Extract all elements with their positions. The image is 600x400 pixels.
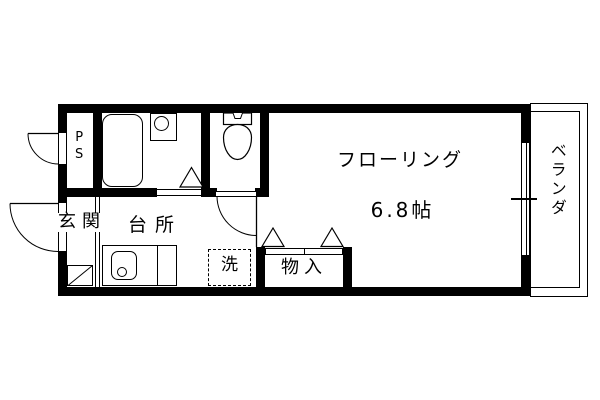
ps-label: PS [72, 130, 86, 164]
kitchen-label: 台所 [128, 216, 182, 236]
shoe-cabinet-diagonal [68, 266, 93, 286]
flooring-size-label: 6.8帖 [300, 200, 505, 221]
floor-plan: PS 玄関 台所 洗 物入 フローリング 6.8帖 ベランダ [0, 0, 600, 400]
bath-door-triangle [180, 168, 203, 188]
washer-label: 洗 [208, 257, 251, 275]
toilet [224, 113, 252, 160]
toilet-door-arc [217, 196, 257, 236]
toilet-bowl [224, 125, 252, 160]
ps-door-arc [28, 134, 59, 165]
closet-label: 物入 [265, 259, 343, 278]
closet-triangle-left [262, 228, 284, 247]
flooring-label: フローリング [295, 151, 505, 171]
closet-triangle-right [321, 228, 343, 247]
toilet-tank-notch [233, 113, 243, 119]
entrance-door-arc [10, 204, 59, 252]
veranda-label: ベランダ [548, 142, 565, 218]
entrance-label: 玄関 [58, 213, 106, 232]
